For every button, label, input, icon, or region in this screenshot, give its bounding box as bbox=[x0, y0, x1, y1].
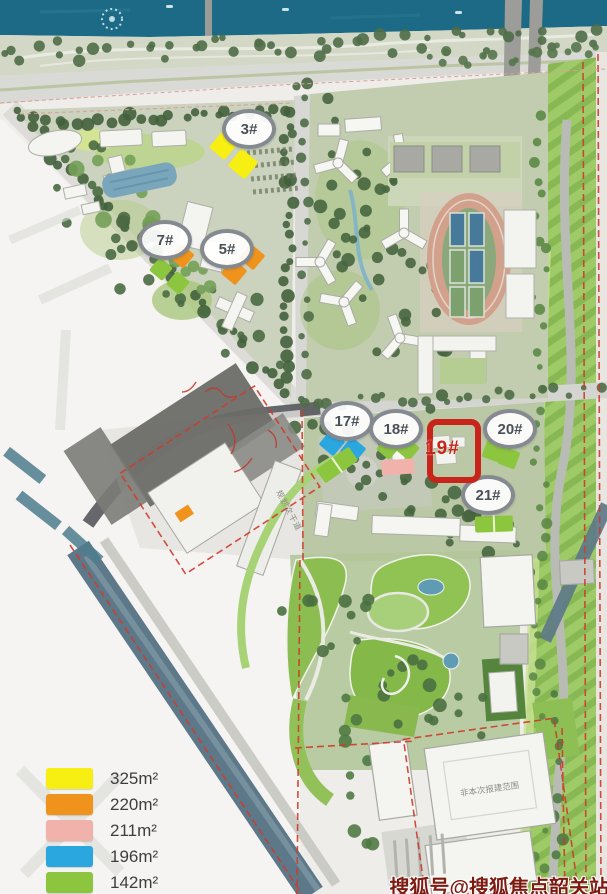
legend-swatch-pink bbox=[46, 820, 93, 841]
legend-item-211: 211m² bbox=[46, 820, 158, 841]
legend-item-196: 196m² bbox=[46, 846, 158, 867]
pond bbox=[418, 579, 444, 595]
badge-building-17: 17# bbox=[320, 401, 374, 441]
legend-item-142: 142m² bbox=[46, 872, 158, 893]
badge-building-3: 3# bbox=[222, 109, 276, 149]
legend-item-220: 220m² bbox=[46, 794, 158, 815]
legend-swatch-yellow bbox=[46, 768, 93, 789]
legend-label: 196m² bbox=[110, 847, 158, 867]
badge-building-18: 18# bbox=[369, 409, 423, 449]
bridge-pylon bbox=[205, 0, 212, 38]
badge-building-5: 5# bbox=[200, 229, 254, 269]
legend-swatch-orange bbox=[46, 794, 93, 815]
legend-label: 142m² bbox=[110, 873, 158, 893]
badge-building-7: 7# bbox=[138, 220, 192, 260]
unit-211-marker bbox=[381, 458, 415, 475]
legend-swatch-green bbox=[46, 872, 93, 893]
sohu-watermark: 搜狐号@搜狐焦点韶关站 bbox=[389, 871, 607, 894]
legend-label: 220m² bbox=[110, 795, 158, 815]
unit-legend: 325m² 220m² 211m² 196m² 142m² bbox=[46, 768, 158, 894]
legend-swatch-blue bbox=[46, 846, 93, 867]
legend-item-325: 325m² bbox=[46, 768, 158, 789]
legend-label: 325m² bbox=[110, 769, 158, 789]
pond bbox=[443, 653, 459, 669]
site-plan: 规划次干道 bbox=[0, 0, 607, 894]
legend-label: 211m² bbox=[110, 821, 157, 841]
badge-building-20: 20# bbox=[483, 409, 537, 449]
building-19-label: 19# bbox=[425, 438, 479, 460]
